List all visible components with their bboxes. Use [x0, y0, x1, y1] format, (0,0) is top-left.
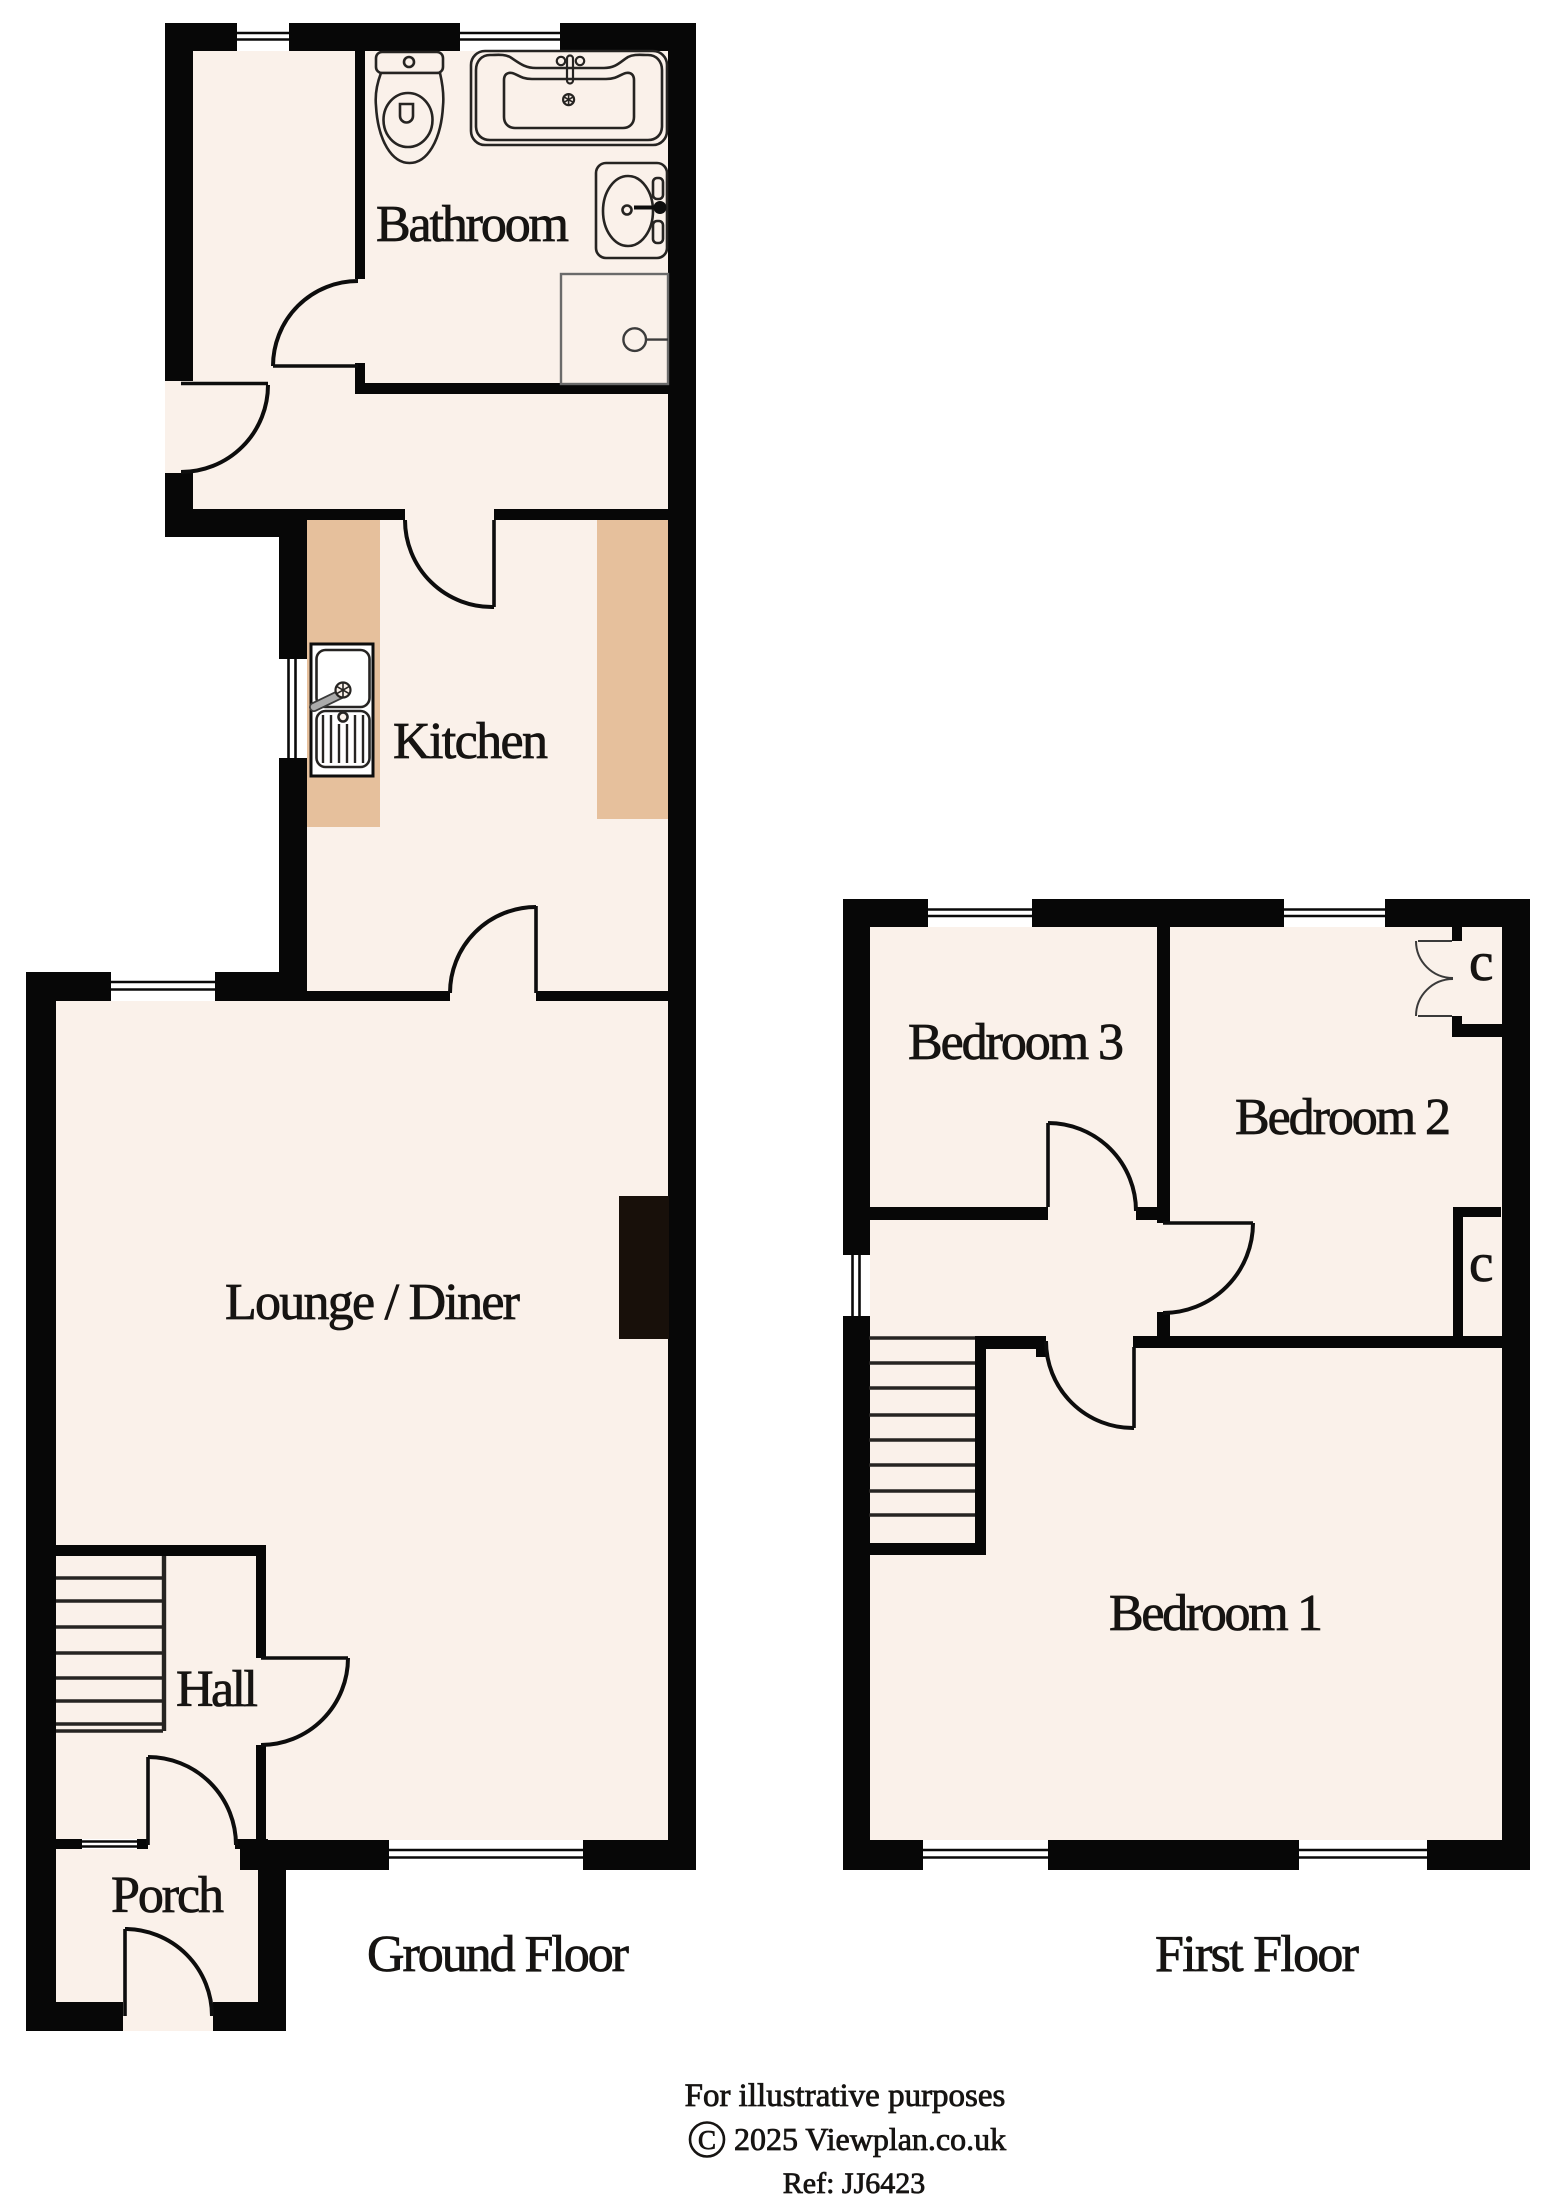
svg-text:Ref: JJ6423: Ref: JJ6423	[783, 2167, 926, 2200]
svg-text:Bedroom 2: Bedroom 2	[1235, 1089, 1451, 1146]
svg-text:Hall: Hall	[176, 1661, 258, 1718]
svg-text:Ground Floor: Ground Floor	[367, 1926, 629, 1983]
svg-text:c: c	[1469, 931, 1493, 992]
svg-text:Kitchen: Kitchen	[393, 713, 548, 770]
svg-text:Lounge / Diner: Lounge / Diner	[225, 1274, 520, 1331]
svg-text:Bedroom 1: Bedroom 1	[1109, 1585, 1323, 1642]
svg-text:First Floor: First Floor	[1155, 1926, 1359, 1983]
svg-text:C: C	[698, 2125, 716, 2155]
svg-text:Bathroom: Bathroom	[376, 196, 569, 253]
svg-text:c: c	[1469, 1232, 1493, 1293]
svg-text:Bedroom 3: Bedroom 3	[908, 1014, 1124, 1071]
svg-text:Porch: Porch	[111, 1867, 224, 1924]
svg-text:For illustrative purposes: For illustrative purposes	[685, 2078, 1006, 2114]
svg-text:2025 Viewplan.co.uk: 2025 Viewplan.co.uk	[734, 2121, 1006, 2157]
